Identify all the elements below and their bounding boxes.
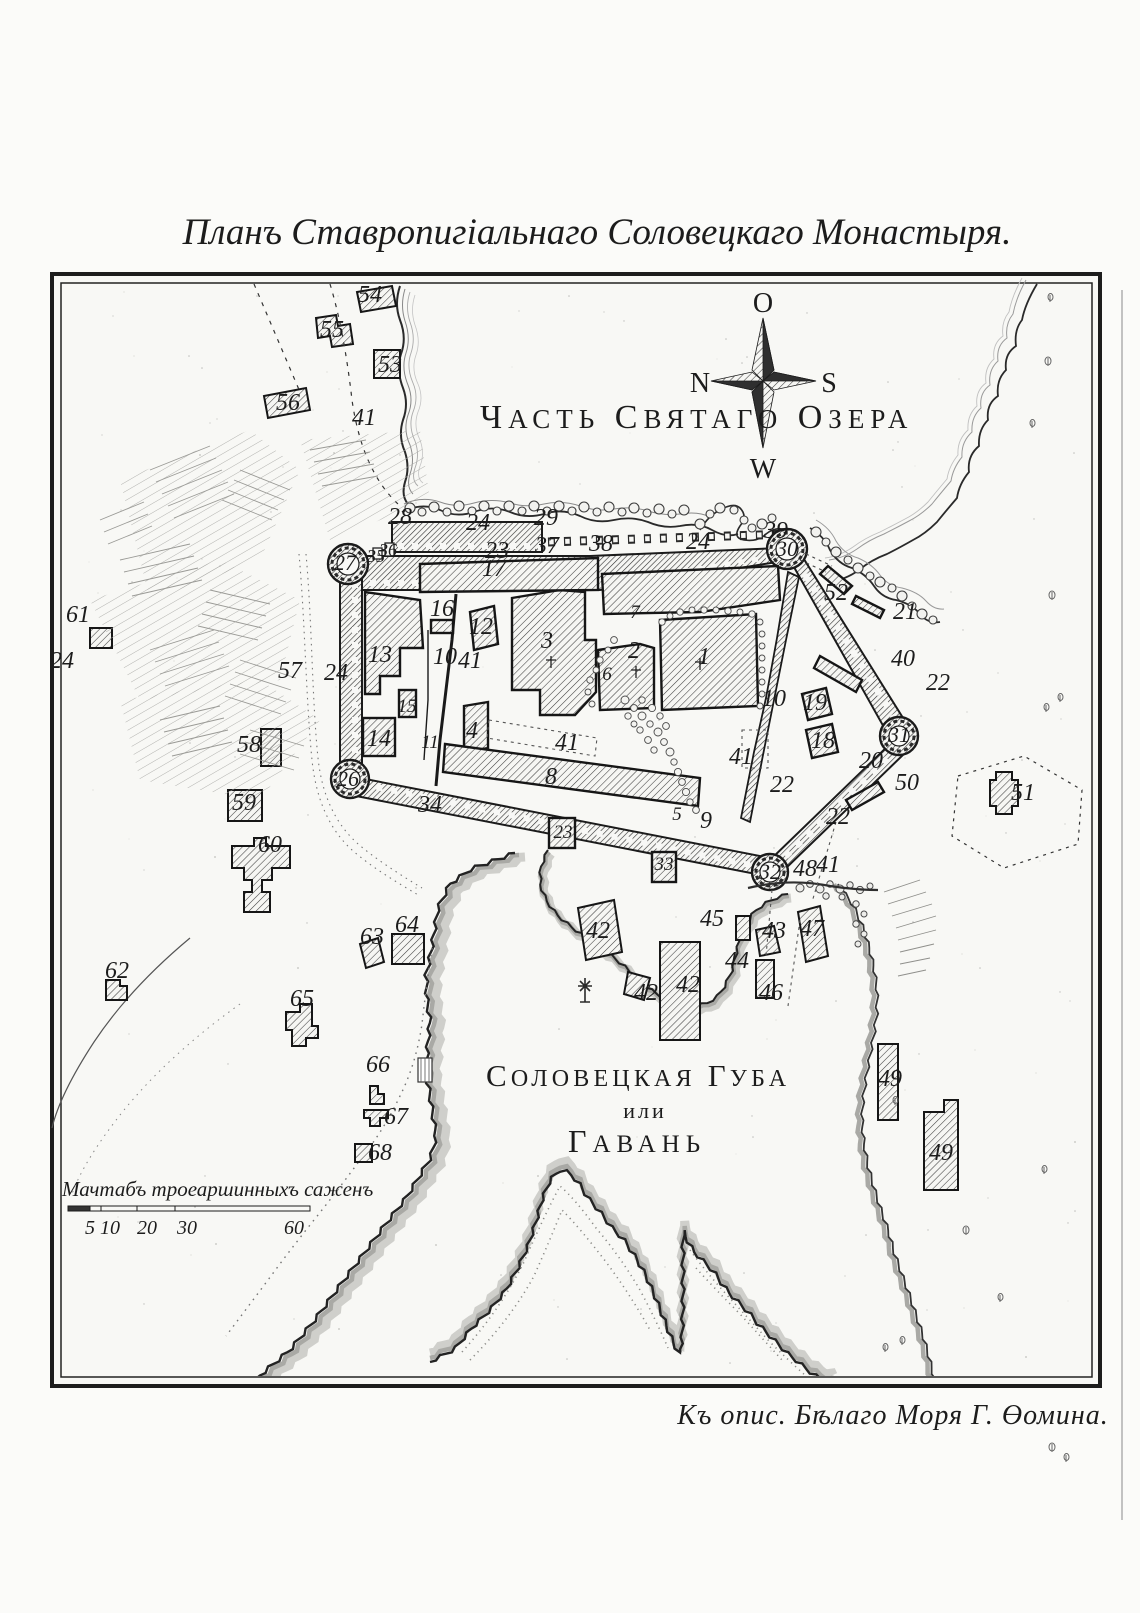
svg-text:26: 26 [337, 766, 359, 791]
svg-text:14: 14 [367, 726, 391, 752]
svg-text:22: 22 [826, 804, 850, 830]
svg-text:62: 62 [105, 958, 129, 984]
svg-text:24: 24 [686, 529, 710, 555]
svg-text:Къ опис. Бѣлаго Моря Г. Өомина: Къ опис. Бѣлаго Моря Г. Өомина. [676, 1400, 1109, 1431]
svg-text:24: 24 [324, 660, 348, 686]
svg-text:38: 38 [588, 531, 613, 557]
svg-text:ЧАСТЬ СВЯТАГО ОЗЕРА: ЧАСТЬ СВЯТАГО ОЗЕРА [480, 399, 913, 436]
svg-text:O: O [753, 288, 773, 319]
svg-text:N: N [690, 368, 710, 399]
svg-text:68: 68 [368, 1140, 392, 1166]
svg-text:42: 42 [586, 918, 610, 944]
svg-text:41: 41 [816, 852, 840, 878]
svg-text:33: 33 [654, 854, 674, 875]
svg-text:41: 41 [555, 730, 579, 756]
svg-text:43: 43 [762, 918, 786, 944]
svg-text:29: 29 [534, 505, 558, 531]
svg-text:W: W [750, 454, 777, 485]
svg-text:54: 54 [358, 282, 382, 308]
svg-text:19: 19 [803, 690, 827, 716]
svg-text:10: 10 [762, 686, 786, 712]
svg-text:3: 3 [540, 628, 553, 654]
svg-text:24: 24 [466, 510, 490, 536]
svg-text:12: 12 [469, 614, 493, 640]
svg-text:5: 5 [672, 804, 682, 825]
svg-text:55: 55 [320, 317, 344, 343]
svg-text:40: 40 [891, 646, 915, 672]
svg-text:22: 22 [926, 670, 950, 696]
svg-text:31: 31 [887, 722, 910, 747]
svg-text:37: 37 [534, 533, 560, 559]
svg-text:67: 67 [384, 1104, 409, 1130]
svg-text:Мачтабъ троеаршинныхъ саженъ: Мачтабъ троеаршинныхъ саженъ [61, 1177, 373, 1201]
svg-text:58: 58 [237, 732, 261, 758]
svg-text:23: 23 [485, 538, 509, 564]
svg-text:6: 6 [602, 664, 612, 685]
svg-text:Планъ Ставропигіальнаго Солове: Планъ Ставропигіальнаго Соловецкаго Мона… [182, 212, 1012, 253]
svg-text:49: 49 [878, 1066, 902, 1092]
svg-text:22: 22 [770, 772, 794, 798]
svg-text:42: 42 [676, 972, 700, 998]
svg-text:1: 1 [698, 644, 710, 670]
svg-text:51: 51 [1011, 780, 1035, 806]
svg-text:8: 8 [545, 764, 557, 790]
svg-text:7: 7 [630, 602, 641, 623]
svg-text:20: 20 [859, 748, 883, 774]
svg-text:9: 9 [700, 808, 712, 834]
svg-text:34: 34 [417, 792, 442, 818]
svg-text:47: 47 [800, 916, 825, 942]
svg-text:53: 53 [378, 352, 402, 378]
svg-text:30: 30 [176, 1217, 197, 1239]
svg-text:49: 49 [929, 1140, 953, 1166]
svg-text:63: 63 [360, 924, 384, 950]
svg-text:S: S [821, 368, 837, 399]
svg-text:50: 50 [895, 770, 919, 796]
svg-text:41: 41 [729, 744, 753, 770]
svg-text:28: 28 [388, 504, 412, 530]
svg-text:44: 44 [725, 948, 749, 974]
svg-text:32: 32 [758, 859, 781, 884]
svg-text:27: 27 [334, 550, 357, 575]
svg-text:66: 66 [366, 1052, 390, 1078]
svg-text:24: 24 [50, 648, 74, 674]
svg-text:или: или [623, 1098, 667, 1123]
svg-text:4: 4 [466, 718, 478, 744]
svg-text:41: 41 [458, 648, 482, 674]
svg-text:13: 13 [368, 642, 392, 668]
svg-text:45: 45 [700, 906, 724, 932]
svg-text:59: 59 [232, 790, 256, 816]
svg-text:65: 65 [290, 986, 314, 1012]
svg-text:15: 15 [398, 696, 417, 717]
svg-text:60: 60 [258, 832, 282, 858]
svg-text:10: 10 [100, 1217, 120, 1239]
svg-text:5: 5 [85, 1217, 95, 1239]
svg-text:41: 41 [352, 405, 376, 431]
svg-text:39: 39 [763, 518, 788, 544]
svg-text:52: 52 [824, 580, 848, 606]
svg-text:11: 11 [421, 732, 439, 753]
svg-text:23: 23 [554, 822, 573, 843]
svg-text:61: 61 [66, 602, 90, 628]
svg-text:56: 56 [276, 390, 300, 416]
svg-text:18: 18 [811, 728, 835, 754]
svg-text:20: 20 [137, 1217, 157, 1239]
svg-text:46: 46 [759, 980, 783, 1006]
svg-text:10: 10 [433, 644, 457, 670]
svg-text:42: 42 [634, 980, 658, 1006]
svg-text:36: 36 [378, 540, 397, 560]
svg-text:64: 64 [395, 912, 419, 938]
svg-text:2: 2 [628, 638, 640, 664]
svg-text:16: 16 [430, 596, 454, 622]
svg-text:21: 21 [893, 599, 917, 625]
svg-text:57: 57 [278, 658, 303, 684]
svg-text:48: 48 [793, 856, 817, 882]
